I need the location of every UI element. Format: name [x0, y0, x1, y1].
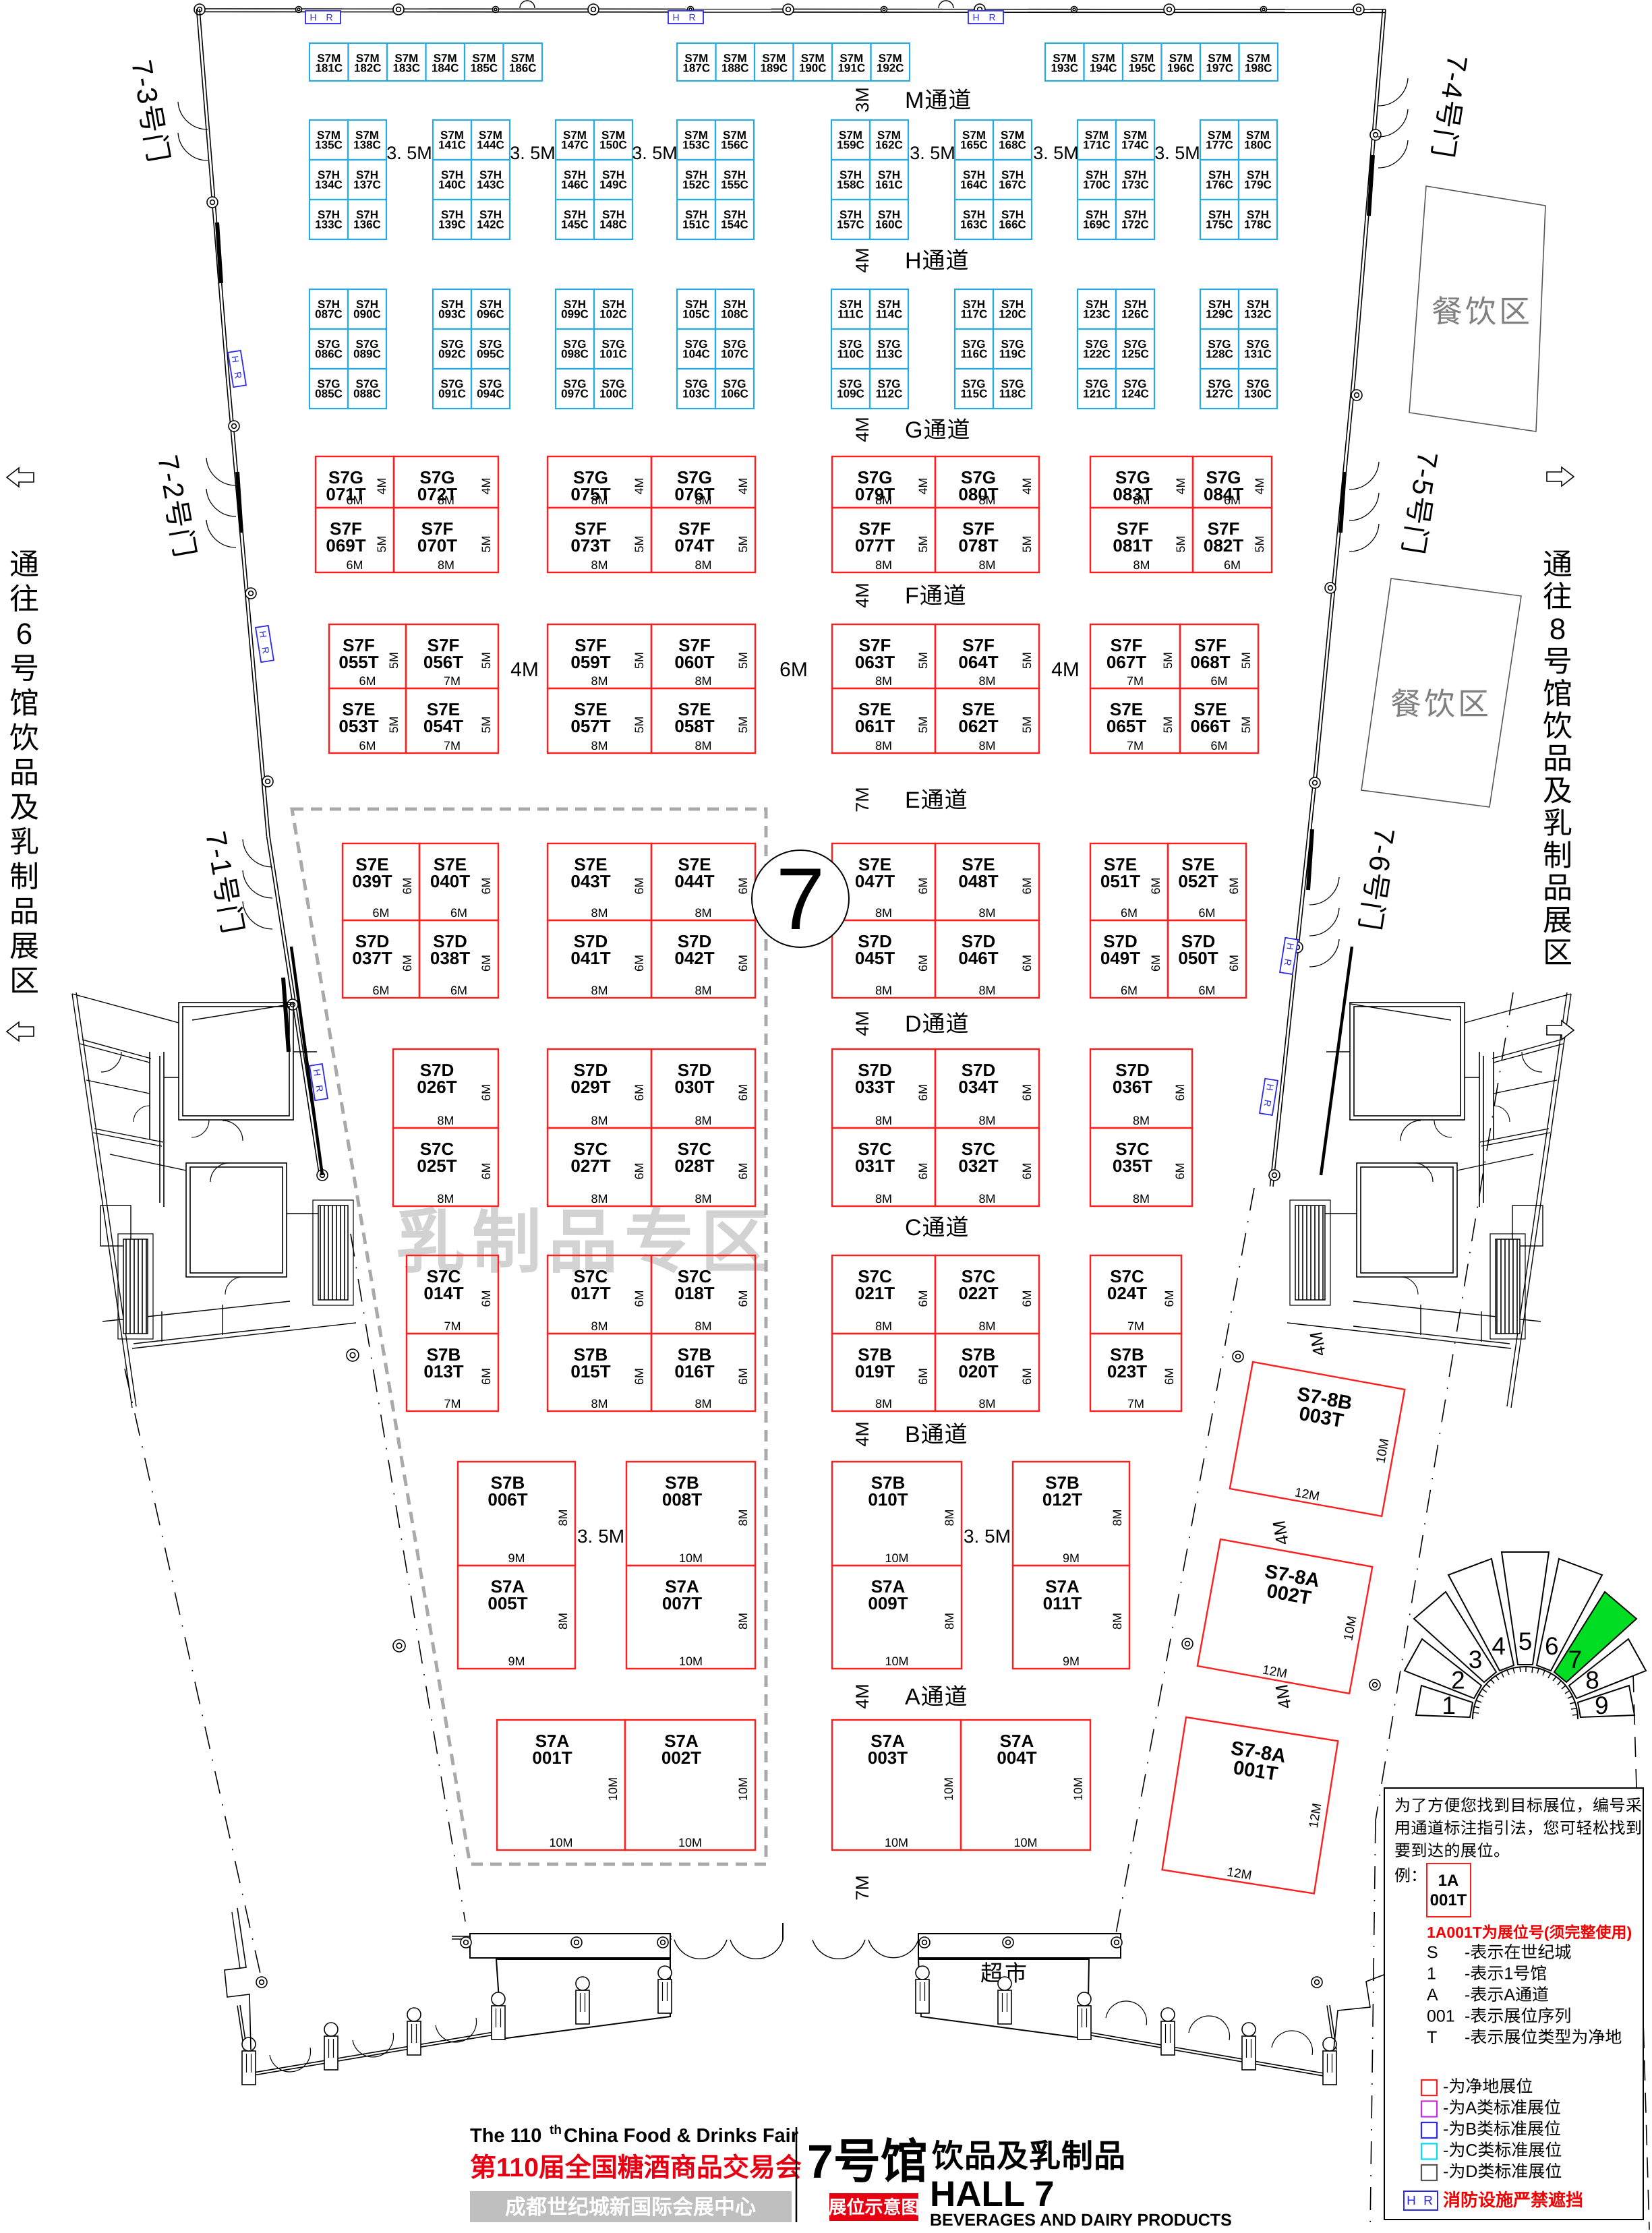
svg-text:6M: 6M — [1198, 984, 1215, 997]
svg-text:181C: 181C — [315, 62, 343, 75]
svg-text:052T: 052T — [1178, 871, 1218, 891]
svg-text:-表示在世纪城: -表示在世纪城 — [1465, 1943, 1571, 1962]
svg-text:E通道: E通道 — [905, 787, 968, 813]
svg-text:5M: 5M — [1020, 716, 1034, 733]
svg-text:040T: 040T — [430, 871, 470, 891]
svg-text:129C: 129C — [1206, 308, 1233, 321]
svg-text:8M: 8M — [1111, 1509, 1124, 1526]
svg-text:8M: 8M — [978, 1397, 995, 1410]
svg-text:196C: 196C — [1167, 62, 1195, 75]
svg-text:8M: 8M — [695, 1114, 711, 1127]
svg-text:6M: 6M — [359, 739, 376, 752]
svg-text:188C: 188C — [721, 62, 749, 75]
svg-text:004T: 004T — [997, 1748, 1036, 1768]
svg-text:125C: 125C — [1121, 348, 1149, 361]
svg-text:及: 及 — [1543, 775, 1572, 808]
svg-text:096C: 096C — [477, 308, 504, 321]
svg-text:10M: 10M — [678, 1836, 702, 1849]
svg-text:8M: 8M — [556, 1613, 570, 1630]
svg-text:6M: 6M — [450, 906, 467, 920]
svg-text:041T: 041T — [570, 948, 610, 968]
svg-text:143C: 143C — [477, 179, 504, 191]
svg-text:9M: 9M — [508, 1551, 525, 1565]
svg-text:8M: 8M — [875, 1114, 892, 1127]
svg-text:4M: 4M — [479, 477, 493, 494]
svg-text:6M: 6M — [1162, 1368, 1176, 1385]
svg-text:8M: 8M — [978, 1319, 995, 1333]
svg-text:8M: 8M — [695, 984, 711, 997]
svg-text:185C: 185C — [470, 62, 498, 75]
svg-text:046T: 046T — [958, 948, 998, 968]
svg-text:134C: 134C — [315, 179, 343, 191]
svg-text:3: 3 — [1469, 1646, 1483, 1673]
svg-text:070T: 070T — [417, 535, 457, 556]
svg-text:10M: 10M — [1013, 1836, 1037, 1849]
svg-text:101C: 101C — [599, 348, 627, 361]
svg-text:10M: 10M — [679, 1655, 703, 1668]
svg-text:6M: 6M — [632, 1084, 646, 1101]
svg-text:4M: 4M — [852, 1011, 873, 1036]
svg-text:8M: 8M — [978, 906, 995, 920]
svg-text:6M: 6M — [1020, 1368, 1034, 1385]
svg-text:5M: 5M — [1020, 535, 1034, 552]
svg-text:8: 8 — [1550, 613, 1566, 646]
svg-text:8M: 8M — [978, 494, 995, 507]
svg-text:6M: 6M — [1149, 877, 1162, 894]
svg-text:7: 7 — [776, 850, 825, 948]
svg-text:10M: 10M — [736, 1777, 750, 1801]
svg-text:8M: 8M — [978, 1114, 995, 1127]
svg-text:5M: 5M — [387, 716, 401, 733]
svg-text:6M: 6M — [916, 1368, 930, 1385]
svg-text:017T: 017T — [570, 1283, 610, 1303]
svg-text:109C: 109C — [837, 388, 864, 400]
svg-text:099C: 099C — [561, 308, 589, 321]
svg-text:6M: 6M — [479, 1084, 493, 1101]
svg-text:通: 通 — [1543, 548, 1572, 581]
svg-text:4M: 4M — [852, 417, 873, 442]
svg-text:8M: 8M — [1133, 494, 1150, 507]
svg-text:6M: 6M — [1210, 739, 1227, 752]
svg-text:M通道: M通道 — [905, 88, 972, 113]
svg-text:010T: 010T — [868, 1489, 908, 1510]
svg-text:China Food & Drinks Fair: China Food & Drinks Fair — [564, 2125, 798, 2147]
svg-text:-为A类标准展位: -为A类标准展位 — [1443, 2099, 1561, 2118]
svg-text:002T: 002T — [661, 1748, 701, 1768]
svg-text:6M: 6M — [736, 877, 750, 894]
svg-text:4M: 4M — [852, 247, 873, 273]
svg-text:8M: 8M — [695, 906, 711, 920]
svg-text:The 110: The 110 — [470, 2125, 541, 2147]
svg-text:001T: 001T — [1430, 1891, 1467, 1909]
svg-text:th: th — [550, 2123, 562, 2137]
svg-text:138C: 138C — [353, 139, 381, 152]
svg-text:8M: 8M — [695, 739, 711, 752]
svg-text:028T: 028T — [674, 1156, 714, 1176]
svg-text:1A001T为展位号(须完整使用): 1A001T为展位号(须完整使用) — [1427, 1924, 1632, 1941]
svg-text:192C: 192C — [877, 62, 904, 75]
svg-text:186C: 186C — [509, 62, 537, 75]
svg-text:8M: 8M — [1111, 1613, 1124, 1630]
svg-text:5M: 5M — [632, 535, 646, 552]
svg-text:馆: 馆 — [1543, 678, 1572, 711]
svg-text:048T: 048T — [958, 871, 998, 891]
svg-text:087C: 087C — [315, 308, 343, 321]
svg-text:8M: 8M — [591, 739, 608, 752]
svg-text:106C: 106C — [721, 388, 748, 400]
svg-text:007T: 007T — [662, 1593, 702, 1613]
svg-text:190C: 190C — [799, 62, 827, 75]
svg-text:145C: 145C — [561, 218, 589, 231]
svg-text:6M: 6M — [736, 1290, 750, 1307]
svg-text:165C: 165C — [960, 139, 988, 152]
svg-text:157C: 157C — [837, 218, 864, 231]
svg-text:137C: 137C — [353, 179, 381, 191]
svg-text:乳: 乳 — [1543, 807, 1572, 840]
svg-text:6M: 6M — [450, 984, 467, 997]
svg-text:餐饮区: 餐饮区 — [1432, 294, 1533, 329]
svg-text:4M: 4M — [510, 659, 539, 681]
svg-text:178C: 178C — [1244, 218, 1272, 231]
svg-text:003T: 003T — [868, 1748, 908, 1768]
svg-text:消防设施严禁遮挡: 消防设施严禁遮挡 — [1443, 2190, 1583, 2210]
svg-text:品: 品 — [9, 756, 39, 790]
svg-text:067T: 067T — [1107, 652, 1146, 672]
svg-text:HALL 7: HALL 7 — [930, 2174, 1055, 2214]
svg-text:及: 及 — [9, 792, 39, 825]
svg-text:119C: 119C — [999, 348, 1026, 361]
svg-text:8M: 8M — [695, 1192, 711, 1205]
svg-text:5M: 5M — [479, 535, 493, 552]
svg-text:5M: 5M — [916, 652, 930, 669]
svg-text:7M: 7M — [852, 1875, 873, 1901]
svg-text:030T: 030T — [674, 1077, 714, 1097]
svg-text:区: 区 — [9, 965, 39, 998]
svg-text:6M: 6M — [479, 1368, 493, 1385]
svg-text:8M: 8M — [978, 1192, 995, 1205]
svg-text:餐饮区: 餐饮区 — [1390, 686, 1492, 721]
svg-text:要到达的展位。: 要到达的展位。 — [1394, 1842, 1510, 1860]
svg-text:4M: 4M — [375, 477, 388, 494]
svg-text:A: A — [1427, 1986, 1438, 2004]
svg-text:8: 8 — [1585, 1667, 1599, 1694]
svg-text:037T: 037T — [352, 948, 392, 968]
svg-text:184C: 184C — [432, 62, 459, 75]
svg-text:092C: 092C — [438, 348, 466, 361]
svg-text:111C: 111C — [837, 308, 864, 321]
svg-text:F通道: F通道 — [905, 583, 967, 609]
svg-text:6M: 6M — [1198, 906, 1215, 920]
svg-text:6M: 6M — [1020, 1290, 1034, 1307]
svg-text:195C: 195C — [1128, 62, 1156, 75]
svg-text:194C: 194C — [1090, 62, 1117, 75]
svg-text:182C: 182C — [354, 62, 382, 75]
svg-text:027T: 027T — [570, 1156, 610, 1176]
svg-text:097C: 097C — [561, 388, 589, 400]
svg-text:016T: 016T — [674, 1361, 714, 1381]
svg-text:8M: 8M — [875, 558, 892, 572]
svg-text:149C: 149C — [599, 179, 627, 191]
svg-text:6M: 6M — [346, 494, 363, 507]
svg-text:-为B类标准展位: -为B类标准展位 — [1443, 2120, 1561, 2139]
svg-text:038T: 038T — [430, 948, 470, 968]
svg-text:103C: 103C — [682, 388, 710, 400]
svg-text:086C: 086C — [315, 348, 343, 361]
svg-text:7M: 7M — [852, 787, 873, 812]
svg-text:7M: 7M — [1127, 1319, 1144, 1333]
svg-text:034T: 034T — [958, 1077, 998, 1097]
svg-text:167C: 167C — [999, 179, 1026, 191]
svg-text:10M: 10M — [606, 1777, 620, 1801]
svg-text:5M: 5M — [736, 652, 750, 669]
svg-text:005T: 005T — [488, 1593, 527, 1613]
svg-text:193C: 193C — [1051, 62, 1078, 75]
svg-text:018T: 018T — [674, 1283, 714, 1303]
svg-text:140C: 140C — [438, 179, 466, 191]
svg-text:8M: 8M — [591, 1192, 608, 1205]
svg-text:4M: 4M — [916, 477, 930, 494]
svg-text:制: 制 — [472, 1203, 541, 1281]
svg-text:8M: 8M — [437, 1114, 454, 1127]
svg-text:-为C类标准展位: -为C类标准展位 — [1443, 2141, 1562, 2160]
svg-text:4M: 4M — [1305, 1330, 1330, 1358]
svg-text:013T: 013T — [423, 1361, 463, 1381]
svg-text:8M: 8M — [695, 1397, 711, 1410]
svg-text:091C: 091C — [438, 388, 466, 400]
svg-text:6M: 6M — [1162, 1290, 1176, 1307]
svg-text:8M: 8M — [591, 674, 608, 688]
svg-text:095C: 095C — [477, 348, 504, 361]
svg-text:050T: 050T — [1178, 948, 1218, 968]
svg-text:063T: 063T — [855, 652, 895, 672]
svg-text:172C: 172C — [1121, 218, 1149, 231]
svg-text:9: 9 — [1595, 1692, 1609, 1719]
svg-text:5: 5 — [1518, 1628, 1533, 1655]
svg-text:164C: 164C — [960, 179, 988, 191]
svg-text:7M: 7M — [444, 674, 461, 688]
svg-text:198C: 198C — [1245, 62, 1272, 75]
svg-text:制: 制 — [9, 861, 39, 894]
svg-text:4M: 4M — [1174, 477, 1187, 494]
svg-text:001: 001 — [1427, 2007, 1455, 2026]
svg-text:112C: 112C — [876, 388, 903, 400]
svg-text:011T: 011T — [1043, 1593, 1082, 1613]
svg-text:7M: 7M — [1127, 739, 1144, 752]
svg-text:4M: 4M — [1271, 1683, 1295, 1710]
svg-text:饮: 饮 — [1543, 710, 1572, 743]
svg-text:189C: 189C — [760, 62, 788, 75]
svg-text:G通道: G通道 — [905, 417, 970, 443]
svg-text:6M: 6M — [736, 955, 750, 972]
svg-text:6M: 6M — [736, 1368, 750, 1385]
svg-text:8M: 8M — [875, 984, 892, 997]
svg-text:066T: 066T — [1190, 716, 1230, 736]
svg-text:6M: 6M — [916, 1162, 930, 1179]
svg-text:130C: 130C — [1244, 388, 1272, 400]
svg-text:6M: 6M — [401, 955, 414, 972]
svg-text:032T: 032T — [958, 1156, 998, 1176]
svg-text:146C: 146C — [561, 179, 589, 191]
svg-text:6M: 6M — [1020, 1084, 1034, 1101]
svg-text:例：: 例： — [1394, 1867, 1427, 1885]
svg-text:4M: 4M — [852, 1684, 873, 1709]
svg-text:-表示A通道: -表示A通道 — [1465, 1986, 1549, 2004]
svg-text:073T: 073T — [570, 535, 610, 556]
svg-text:062T: 062T — [958, 716, 998, 736]
svg-text:A通道: A通道 — [905, 1684, 968, 1710]
svg-text:148C: 148C — [599, 218, 627, 231]
svg-text:026T: 026T — [417, 1077, 456, 1097]
svg-text:5M: 5M — [632, 652, 646, 669]
svg-text:8M: 8M — [591, 494, 608, 507]
svg-text:171C: 171C — [1083, 139, 1111, 152]
svg-text:8M: 8M — [875, 1397, 892, 1410]
svg-text:8M: 8M — [943, 1613, 956, 1630]
svg-text:10M: 10M — [679, 1551, 703, 1565]
svg-text:8M: 8M — [875, 739, 892, 752]
svg-text:展: 展 — [9, 930, 39, 963]
svg-text:5M: 5M — [916, 535, 930, 552]
svg-text:6M: 6M — [916, 955, 930, 972]
svg-text:区: 区 — [1543, 936, 1572, 970]
svg-text:6M: 6M — [736, 1084, 750, 1101]
svg-text:1A: 1A — [1438, 1872, 1459, 1890]
svg-text:8M: 8M — [1133, 1114, 1150, 1127]
svg-text:10M: 10M — [549, 1836, 572, 1849]
svg-text:025T: 025T — [417, 1156, 456, 1176]
svg-text:饮: 饮 — [9, 722, 39, 755]
svg-text:6M: 6M — [479, 877, 493, 894]
svg-text:042T: 042T — [674, 948, 714, 968]
svg-text:-为净地展位: -为净地展位 — [1443, 2077, 1533, 2096]
svg-text:168C: 168C — [999, 139, 1026, 152]
svg-text:014T: 014T — [423, 1283, 463, 1303]
svg-text:183C: 183C — [392, 62, 420, 75]
svg-text:馆: 馆 — [9, 687, 39, 720]
svg-text:6M: 6M — [916, 877, 930, 894]
svg-text:BEVERAGES AND DAIRY PRODUCTS: BEVERAGES AND DAIRY PRODUCTS — [930, 2211, 1232, 2230]
svg-text:5M: 5M — [375, 535, 388, 552]
svg-text:159C: 159C — [837, 139, 864, 152]
svg-text:056T: 056T — [423, 652, 463, 672]
svg-text:082T: 082T — [1204, 535, 1243, 556]
svg-text:6M: 6M — [779, 659, 808, 681]
svg-text:号: 号 — [1543, 645, 1572, 678]
svg-text:166C: 166C — [999, 218, 1026, 231]
svg-text:8M: 8M — [875, 1192, 892, 1205]
svg-text:053T: 053T — [338, 716, 378, 736]
svg-text:024T: 024T — [1107, 1283, 1147, 1303]
svg-text:6M: 6M — [479, 1162, 493, 1179]
svg-text:5M: 5M — [1161, 716, 1175, 733]
svg-text:4M: 4M — [852, 1421, 873, 1447]
svg-text:068T: 068T — [1190, 652, 1230, 672]
svg-text:6M: 6M — [1227, 955, 1241, 972]
svg-text:150C: 150C — [599, 139, 627, 152]
svg-text:107C: 107C — [721, 348, 748, 361]
svg-text:7M: 7M — [444, 1319, 461, 1333]
svg-text:162C: 162C — [875, 139, 903, 152]
svg-text:1: 1 — [1427, 1965, 1436, 1984]
svg-text:3. 5M: 3. 5M — [1154, 143, 1200, 163]
svg-text:3. 5M: 3. 5M — [577, 1526, 624, 1547]
svg-text:117C: 117C — [961, 308, 988, 321]
svg-text:6M: 6M — [359, 674, 376, 688]
svg-text:061T: 061T — [855, 716, 895, 736]
svg-text:6M: 6M — [1020, 877, 1034, 894]
svg-text:6M: 6M — [632, 877, 646, 894]
svg-text:6M: 6M — [479, 1290, 493, 1307]
svg-text:8M: 8M — [591, 906, 608, 920]
svg-text:7号馆: 7号馆 — [807, 2135, 928, 2188]
svg-text:8M: 8M — [978, 674, 995, 688]
svg-text:H通道: H通道 — [905, 248, 970, 274]
svg-text:H R: H R — [972, 12, 999, 23]
svg-text:151C: 151C — [682, 218, 710, 231]
svg-text:8M: 8M — [591, 984, 608, 997]
svg-text:089C: 089C — [353, 348, 381, 361]
svg-text:121C: 121C — [1083, 388, 1111, 400]
svg-text:147C: 147C — [561, 139, 589, 152]
svg-text:10M: 10M — [1071, 1777, 1085, 1801]
svg-text:7M: 7M — [444, 1397, 461, 1410]
svg-text:展位示意图: 展位示意图 — [829, 2197, 920, 2217]
svg-text:035T: 035T — [1113, 1156, 1152, 1176]
svg-text:8M: 8M — [695, 674, 711, 688]
svg-text:-表示展位序列: -表示展位序列 — [1465, 2007, 1571, 2026]
svg-text:展: 展 — [1543, 904, 1572, 937]
svg-text:8M: 8M — [695, 558, 711, 572]
svg-text:6M: 6M — [346, 558, 363, 572]
svg-text:8M: 8M — [695, 1319, 711, 1333]
svg-text:6M: 6M — [1173, 1084, 1187, 1101]
svg-text:6M: 6M — [1020, 955, 1034, 972]
svg-text:8M: 8M — [875, 494, 892, 507]
svg-text:3. 5M: 3. 5M — [964, 1526, 1011, 1547]
svg-text:1: 1 — [1442, 1692, 1456, 1719]
svg-text:029T: 029T — [570, 1077, 610, 1097]
svg-text:4M: 4M — [1020, 477, 1034, 494]
svg-text:077T: 077T — [855, 535, 895, 556]
svg-text:10M: 10M — [885, 1551, 908, 1565]
svg-text:8M: 8M — [1133, 1192, 1150, 1205]
svg-text:6M: 6M — [1149, 955, 1162, 972]
svg-text:8M: 8M — [695, 494, 711, 507]
svg-text:6M: 6M — [1121, 984, 1138, 997]
svg-text:4: 4 — [1492, 1632, 1506, 1660]
svg-text:5M: 5M — [1239, 716, 1253, 733]
svg-text:3. 5M: 3. 5M — [1033, 143, 1079, 163]
svg-text:078T: 078T — [958, 535, 998, 556]
svg-text:8M: 8M — [438, 494, 454, 507]
svg-text:187C: 187C — [682, 62, 710, 75]
svg-text:044T: 044T — [674, 871, 714, 891]
svg-text:045T: 045T — [855, 948, 895, 968]
svg-text:饮品及乳制品: 饮品及乳制品 — [932, 2138, 1126, 2174]
svg-text:132C: 132C — [1244, 308, 1272, 321]
svg-text:088C: 088C — [353, 388, 381, 400]
svg-text:094C: 094C — [477, 388, 504, 400]
svg-text:110C: 110C — [837, 348, 864, 361]
svg-text:6M: 6M — [632, 1368, 646, 1385]
svg-text:124C: 124C — [1121, 388, 1149, 400]
svg-text:9M: 9M — [508, 1655, 525, 1668]
svg-text:161C: 161C — [875, 179, 903, 191]
svg-text:4M: 4M — [1051, 659, 1080, 681]
svg-text:5M: 5M — [736, 535, 750, 552]
svg-text:006T: 006T — [488, 1489, 527, 1510]
svg-text:179C: 179C — [1244, 179, 1272, 191]
